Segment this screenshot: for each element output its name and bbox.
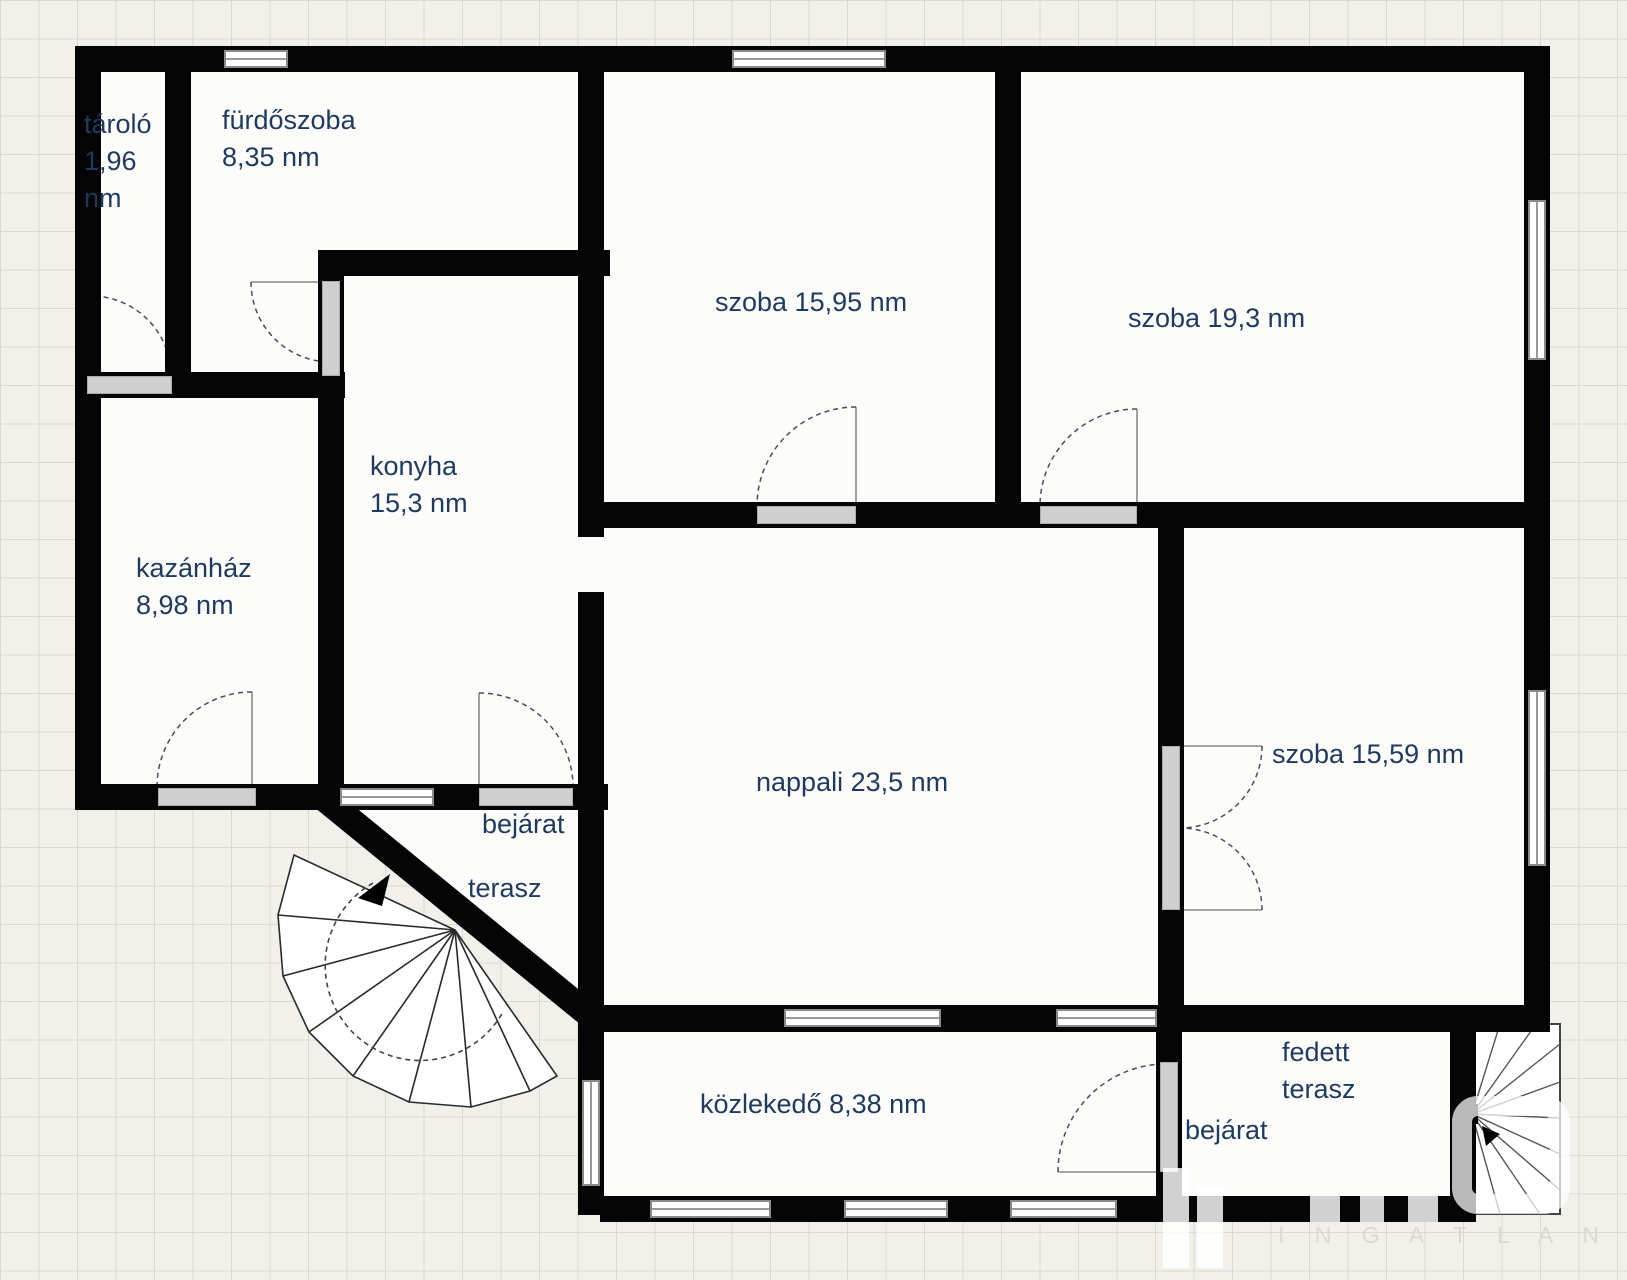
room-label-furdoszoba-line2: 8,35 nm xyxy=(222,139,356,176)
wall-szoba-divider xyxy=(995,46,1021,528)
room-label-kazanhaz-line2: 8,98 nm xyxy=(136,587,252,624)
door-threshold-konyha-entry xyxy=(479,788,573,806)
window-kozlekedo-bottom-3 xyxy=(1010,1200,1117,1218)
wall-mid-vertical-upper xyxy=(578,46,604,537)
door-threshold-french xyxy=(1162,746,1180,910)
door-leaves xyxy=(91,282,1262,1172)
room-label-konyha-line2: 15,3 nm xyxy=(370,485,468,522)
door-threshold-furdoszoba xyxy=(322,281,340,376)
door-threshold-entry-back xyxy=(1160,1062,1178,1172)
door-arc-szoba-193 xyxy=(1040,409,1137,506)
window-furdoszoba-top xyxy=(224,50,288,68)
door-arc-french-lower xyxy=(1180,828,1262,910)
room-label-bejarat-front: bejárat xyxy=(482,806,565,843)
room-label-kozlekedo: közlekedő 8,38 nm xyxy=(700,1086,927,1123)
door-arc-tarolo xyxy=(91,296,171,376)
room-label-tarolo-line2: 1,96 xyxy=(84,143,152,180)
room-label-kazanhaz-line1: kazánház xyxy=(136,550,252,587)
window-kozlekedo-bottom-2 xyxy=(844,1200,948,1218)
wall-fedett-east xyxy=(1450,1018,1476,1222)
window-szoba-1595-top xyxy=(732,50,886,68)
wall-outer-right xyxy=(1524,46,1550,1032)
window-kozlekedo-bottom-1 xyxy=(650,1200,771,1218)
window-szoba-193-right xyxy=(1528,200,1546,360)
door-threshold-tarolo xyxy=(87,376,172,394)
room-label-konyha: konyha 15,3 nm xyxy=(370,448,468,522)
room-label-terasz-front: terasz xyxy=(468,870,542,907)
room-label-tarolo-line3: nm xyxy=(84,180,152,217)
floor-plan: tároló 1,96 nm fürdőszoba 8,35 nm szoba … xyxy=(0,0,1627,1280)
door-threshold-szoba-1595 xyxy=(757,506,856,524)
room-label-fedett-line2: terasz xyxy=(1282,1071,1356,1108)
room-label-bejarat-back: bejárat xyxy=(1185,1112,1268,1149)
door-arc-szoba-1595 xyxy=(757,407,856,506)
window-nappali-bottom-2 xyxy=(1056,1009,1157,1027)
wall-tarolo-divider xyxy=(165,46,191,376)
window-nappali-bottom-1 xyxy=(784,1009,941,1027)
window-szoba-1559-right xyxy=(1528,690,1546,866)
room-label-konyha-line1: konyha xyxy=(370,448,468,485)
door-arc-french-upper xyxy=(1180,746,1262,828)
room-label-szoba-1559: szoba 15,59 nm xyxy=(1272,736,1464,773)
room-label-szoba-1595: szoba 15,95 nm xyxy=(715,284,907,321)
room-label-tarolo-line1: tároló xyxy=(84,106,152,143)
room-label-nappali: nappali 23,5 nm xyxy=(756,764,948,801)
outside-fan-stairs xyxy=(1466,1024,1560,1214)
door-swings xyxy=(91,282,1262,1172)
window-kozlekedo-west xyxy=(582,1080,600,1186)
door-threshold-kazanhaz xyxy=(158,788,256,806)
door-arc-entry-back xyxy=(1058,1064,1166,1172)
room-label-tarolo: tároló 1,96 nm xyxy=(84,106,152,217)
room-label-fedett-line1: fedett xyxy=(1282,1034,1356,1071)
room-label-furdoszoba-line1: fürdőszoba xyxy=(222,102,356,139)
door-threshold-szoba-193 xyxy=(1040,506,1137,524)
door-arcs xyxy=(91,282,1262,1172)
room-label-kazanhaz: kazánház 8,98 nm xyxy=(136,550,252,624)
room-label-furdoszoba: fürdőszoba 8,35 nm xyxy=(222,102,356,176)
window-konyha-bottom xyxy=(340,788,434,806)
door-arc-konyha-entry xyxy=(479,693,573,787)
room-label-fedett-terasz: fedett terasz xyxy=(1282,1034,1356,1108)
room-label-szoba-193: szoba 19,3 nm xyxy=(1128,300,1305,337)
wall-furdoszoba-bottom xyxy=(318,250,610,276)
door-arc-kazanhaz xyxy=(157,692,252,787)
